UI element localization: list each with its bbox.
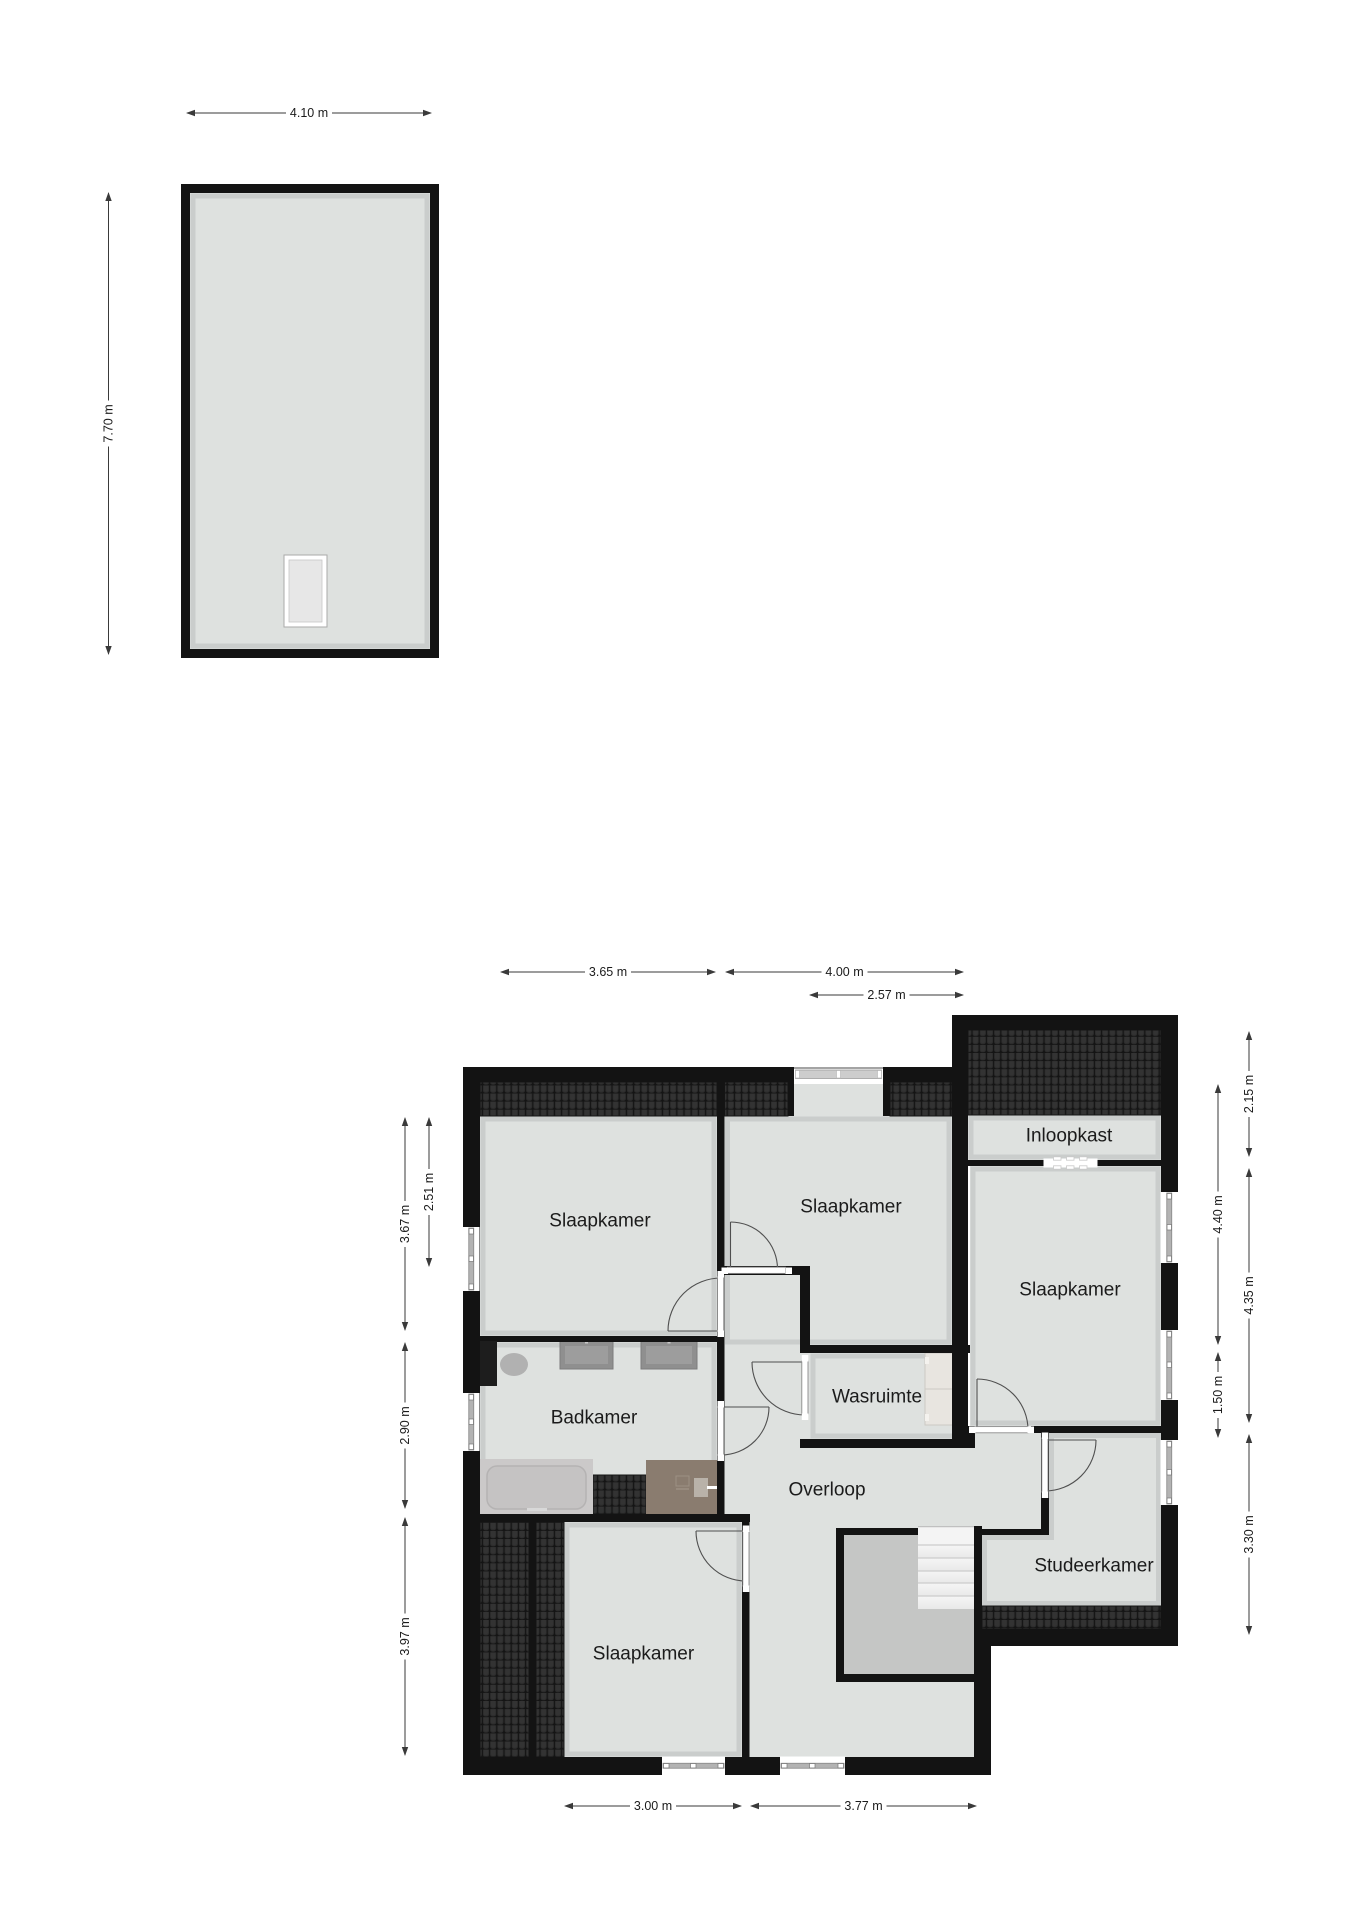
svg-text:3.77 m: 3.77 m bbox=[844, 1799, 882, 1813]
svg-text:4.35 m: 4.35 m bbox=[1242, 1276, 1256, 1314]
svg-text:Slaapkamer: Slaapkamer bbox=[1019, 1280, 1121, 1301]
svg-text:Studeerkamer: Studeerkamer bbox=[1034, 1556, 1154, 1577]
svg-text:3.65 m: 3.65 m bbox=[589, 965, 627, 979]
svg-text:3.97 m: 3.97 m bbox=[398, 1617, 412, 1655]
svg-text:Wasruimte: Wasruimte bbox=[832, 1387, 922, 1408]
svg-text:2.15 m: 2.15 m bbox=[1242, 1075, 1256, 1113]
svg-text:2.90 m: 2.90 m bbox=[398, 1406, 412, 1444]
svg-text:3.00 m: 3.00 m bbox=[634, 1799, 672, 1813]
svg-text:2.51 m: 2.51 m bbox=[422, 1173, 436, 1211]
svg-text:Slaapkamer: Slaapkamer bbox=[549, 1211, 651, 1232]
svg-text:4.40 m: 4.40 m bbox=[1211, 1195, 1225, 1233]
svg-text:2.57 m: 2.57 m bbox=[867, 988, 905, 1002]
svg-text:7.70 m: 7.70 m bbox=[102, 404, 116, 442]
svg-text:4.10 m: 4.10 m bbox=[290, 106, 328, 120]
svg-text:Slaapkamer: Slaapkamer bbox=[593, 1644, 695, 1665]
svg-text:Inloopkast: Inloopkast bbox=[1026, 1126, 1113, 1147]
svg-text:Overloop: Overloop bbox=[788, 1480, 865, 1501]
svg-text:1.50 m: 1.50 m bbox=[1211, 1376, 1225, 1414]
svg-text:3.67 m: 3.67 m bbox=[398, 1205, 412, 1243]
svg-text:3.30 m: 3.30 m bbox=[1242, 1515, 1256, 1553]
svg-text:Badkamer: Badkamer bbox=[551, 1408, 638, 1429]
svg-text:4.00 m: 4.00 m bbox=[825, 965, 863, 979]
svg-text:Slaapkamer: Slaapkamer bbox=[800, 1197, 902, 1218]
